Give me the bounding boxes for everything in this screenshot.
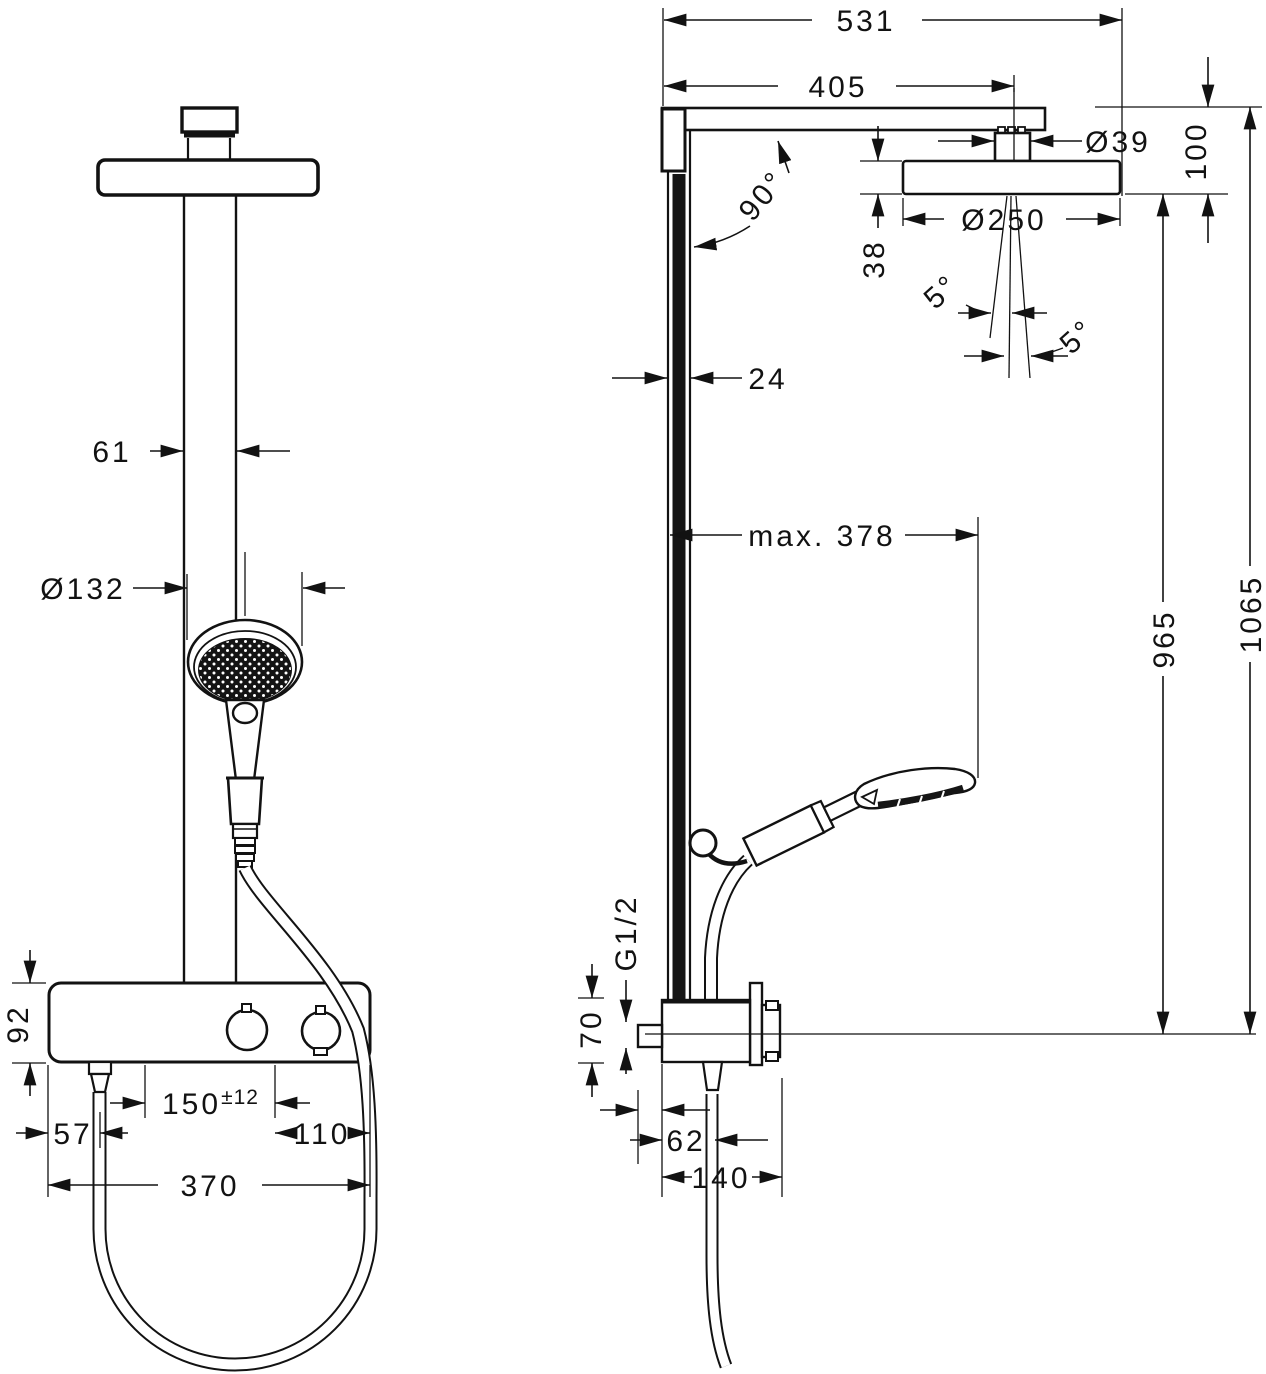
hose-connector-side <box>703 1062 722 1090</box>
shower-arm-side <box>662 108 1045 130</box>
thermostat-front <box>49 983 370 1062</box>
dim-hose-offset: 62 <box>666 1125 705 1158</box>
hose-outlet-side <box>638 1025 662 1047</box>
overhead-shower-front <box>98 160 318 195</box>
background <box>0 0 1266 1374</box>
dim-head-drop: 100 <box>1180 121 1213 180</box>
handle-pivot-front <box>233 703 257 723</box>
dim-supply-to-edge: 110 <box>294 1118 351 1151</box>
holder-clamp-side <box>690 830 716 856</box>
dim-handshower-diameter: Ø132 <box>40 573 125 606</box>
dim-pipe-width: 61 <box>92 436 131 469</box>
dim-body-height-side: 70 <box>575 1009 608 1048</box>
dim-body-width: 370 <box>180 1170 239 1203</box>
drawing-stage: 61 Ø132 92 150±12 57 110 370 <box>0 0 1266 1374</box>
dim-height-head: 965 <box>1148 609 1181 668</box>
dim-total-projection: 531 <box>836 5 895 38</box>
dim-hose-reach: max. 378 <box>748 520 895 553</box>
select-knob-right <box>302 1012 340 1050</box>
bar-top-cap <box>662 109 685 171</box>
wall-connector-side <box>762 1005 780 1057</box>
dim-connector-diameter: Ø39 <box>1085 126 1151 159</box>
dim-edge-to-hose: 57 <box>53 1118 92 1151</box>
dim-height-arm: 1065 <box>1235 575 1266 654</box>
technical-drawing: 61 Ø132 92 150±12 57 110 370 <box>0 0 1266 1374</box>
dim-head-thickness: 38 <box>858 239 891 278</box>
head-disc-side <box>903 161 1120 194</box>
wall-plate-side <box>750 983 762 1065</box>
dim-head-diameter: Ø250 <box>961 204 1046 237</box>
dim-bar-depth: 24 <box>748 363 787 396</box>
dim-projection-head-center: 405 <box>808 71 867 104</box>
dim-hose-thread: G1/2 <box>610 894 643 971</box>
dim-wall-distance: 140 <box>691 1162 750 1195</box>
head-connector-side <box>995 133 1030 161</box>
select-knob-left <box>227 1010 267 1050</box>
dim-body-height: 92 <box>2 1004 35 1043</box>
hose-connector-front <box>89 1062 111 1074</box>
